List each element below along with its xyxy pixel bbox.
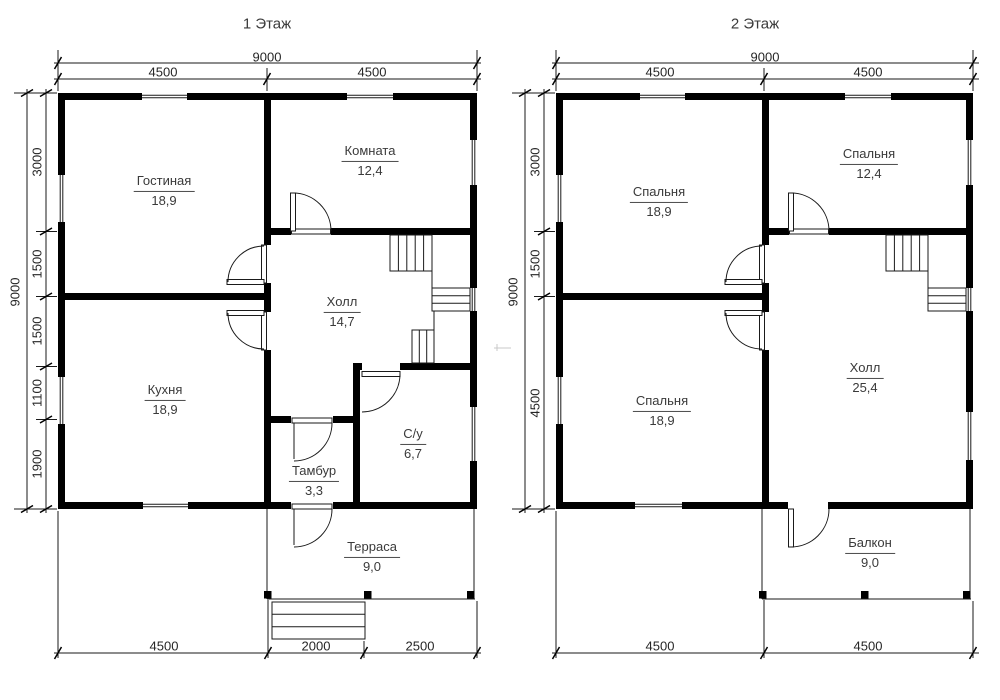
dim-floor2-bottom-segment-2: 4500 bbox=[854, 640, 883, 653]
room-name: С/у bbox=[400, 427, 426, 445]
room-label-hall2: Холл 25,4 bbox=[847, 361, 884, 395]
door-swing bbox=[725, 311, 765, 351]
room-label-hall1: Холл 14,7 bbox=[324, 295, 361, 329]
room-area: 25,4 bbox=[847, 379, 884, 396]
plan-linework bbox=[0, 0, 1000, 700]
room-area: 3,3 bbox=[289, 482, 339, 499]
dim-floor2-bottom-segment-1: 4500 bbox=[646, 640, 675, 653]
room-area: 14,7 bbox=[324, 313, 361, 330]
window bbox=[845, 93, 891, 100]
room-label-kitchen: Кухня 18,9 bbox=[145, 383, 186, 417]
door-swing bbox=[789, 509, 830, 547]
door-swing bbox=[227, 311, 267, 351]
room-name: Спальня bbox=[840, 147, 898, 165]
room-label-bedroom2: Спальня 12,4 bbox=[840, 147, 898, 181]
dim-floor2-top-total: 9000 bbox=[751, 51, 780, 64]
window bbox=[347, 93, 393, 100]
floor1-dimension-lines bbox=[14, 50, 481, 659]
room-name: Холл bbox=[324, 295, 361, 313]
dim-floor1-bottom-segment-3: 2500 bbox=[406, 640, 435, 653]
window bbox=[142, 93, 187, 100]
room-name: Терраса bbox=[344, 540, 400, 558]
room-label-vestibule: Тамбур 3,3 bbox=[289, 464, 339, 498]
dim-floor2-side-total: 9000 bbox=[507, 278, 520, 307]
dim-floor1-side-total: 9000 bbox=[9, 278, 22, 307]
floorplan-canvas: 1 Этаж 9000 4500 4500 9000 3000 1500 150… bbox=[0, 0, 1000, 700]
dim-floor2-top-segment-1: 4500 bbox=[646, 66, 675, 79]
window bbox=[470, 288, 477, 311]
room-area: 18,9 bbox=[630, 203, 688, 220]
window bbox=[470, 407, 477, 461]
window bbox=[966, 140, 973, 185]
dim-floor2-side-segment-3: 4500 bbox=[529, 389, 542, 418]
door-swing bbox=[362, 372, 400, 413]
floor2-doors bbox=[725, 193, 829, 547]
room-area: 18,9 bbox=[134, 192, 195, 209]
dim-floor1-bottom-segment-1: 4500 bbox=[150, 640, 179, 653]
room-name: Гостиная bbox=[134, 174, 195, 192]
room-label-balcony: Балкон 9,0 bbox=[845, 536, 895, 570]
window bbox=[556, 377, 563, 424]
room-name: Балкон bbox=[845, 536, 895, 554]
room-name: Тамбур bbox=[289, 464, 339, 482]
window bbox=[635, 502, 682, 509]
window bbox=[58, 377, 65, 424]
room-label-room: Комната 12,4 bbox=[342, 144, 399, 178]
room-name: Холл bbox=[847, 361, 884, 379]
room-area: 9,0 bbox=[344, 558, 400, 575]
door-swing bbox=[725, 245, 765, 285]
window bbox=[143, 502, 188, 509]
dim-floor1-side-segment-5: 1900 bbox=[31, 450, 44, 479]
dim-floor1-side-segment-1: 3000 bbox=[31, 148, 44, 177]
dim-floor1-side-segment-2: 1500 bbox=[31, 250, 44, 279]
dim-floor2-side-segment-2: 1500 bbox=[529, 250, 542, 279]
window bbox=[58, 175, 65, 222]
door-swing bbox=[291, 193, 332, 234]
room-label-bedroom3: Спальня 18,9 bbox=[633, 394, 691, 428]
watermark-artifact bbox=[494, 344, 511, 351]
floor2-title: 2 Этаж bbox=[731, 17, 779, 32]
floor2-dimension-lines bbox=[512, 50, 979, 659]
room-area: 12,4 bbox=[342, 162, 399, 179]
dim-floor1-side-segment-3: 1500 bbox=[31, 317, 44, 346]
room-area: 18,9 bbox=[145, 401, 186, 418]
floor1-staircase bbox=[390, 235, 470, 363]
room-area: 12,4 bbox=[840, 165, 898, 182]
floor2-walls bbox=[556, 93, 973, 509]
room-area: 6,7 bbox=[400, 445, 426, 462]
terrace-steps bbox=[272, 602, 365, 639]
door-swing bbox=[789, 193, 830, 234]
room-name: Комната bbox=[342, 144, 399, 162]
window bbox=[640, 93, 685, 100]
dim-floor1-bottom-segment-2: 2000 bbox=[302, 640, 331, 653]
room-label-living: Гостиная 18,9 bbox=[134, 174, 195, 208]
door-swing bbox=[292, 504, 332, 547]
window bbox=[556, 175, 563, 222]
door-swing bbox=[227, 245, 267, 285]
room-label-bedroom1: Спальня 18,9 bbox=[630, 185, 688, 219]
dim-floor1-top-total: 9000 bbox=[253, 51, 282, 64]
room-name: Спальня bbox=[630, 185, 688, 203]
room-area: 18,9 bbox=[633, 412, 691, 429]
room-area: 9,0 bbox=[845, 554, 895, 571]
dim-floor2-top-segment-2: 4500 bbox=[854, 66, 883, 79]
room-name: Кухня bbox=[145, 383, 186, 401]
room-label-terrace: Терраса 9,0 bbox=[344, 540, 400, 574]
dim-floor2-side-segment-1: 3000 bbox=[529, 148, 542, 177]
room-label-wc: С/у 6,7 bbox=[400, 427, 426, 461]
dim-floor1-top-segment-1: 4500 bbox=[149, 66, 178, 79]
window bbox=[966, 412, 973, 460]
window bbox=[966, 288, 973, 311]
window bbox=[470, 140, 477, 185]
floor2-staircase bbox=[886, 235, 966, 311]
door-swing bbox=[292, 418, 332, 461]
floor1-title: 1 Этаж bbox=[243, 17, 291, 32]
dim-floor1-side-segment-4: 1100 bbox=[31, 379, 44, 407]
dim-floor1-top-segment-2: 4500 bbox=[358, 66, 387, 79]
room-name: Спальня bbox=[633, 394, 691, 412]
